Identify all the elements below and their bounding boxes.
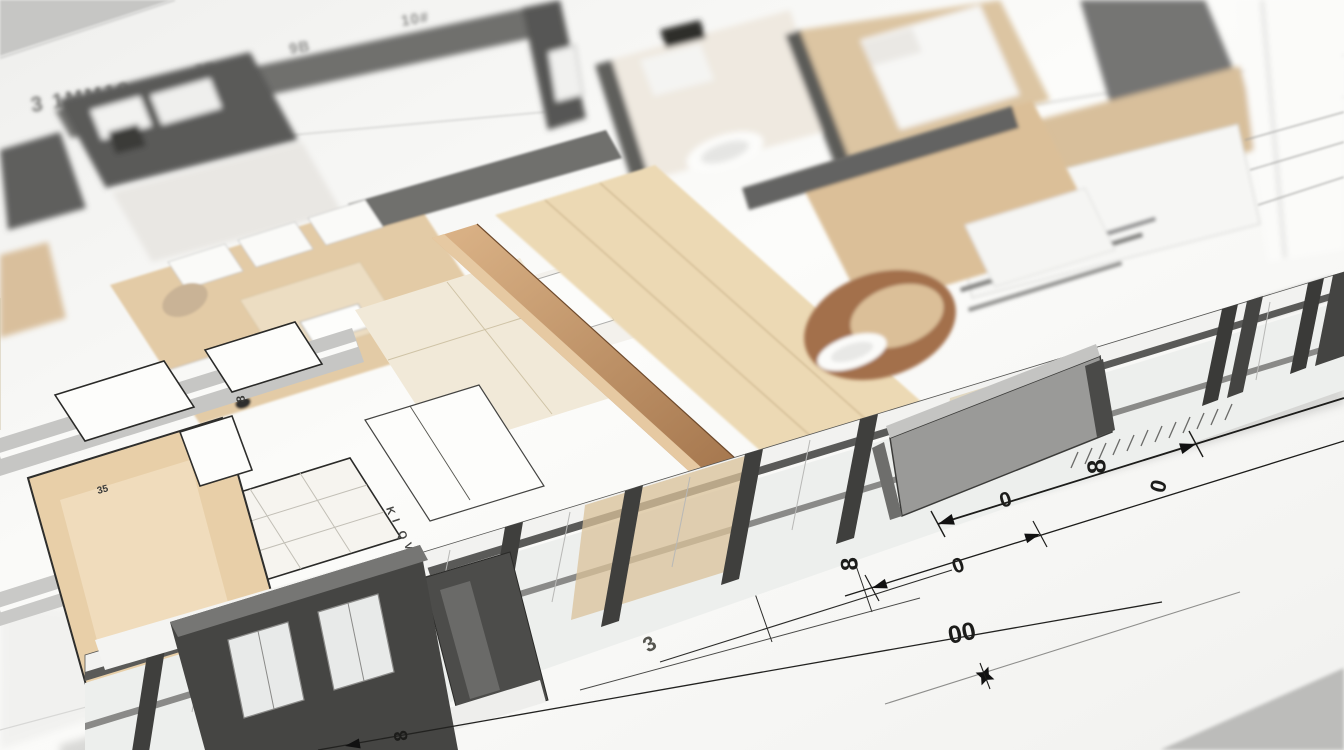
scene-svg: 3 1MM10 7B 9B 10# bbox=[0, 0, 1344, 750]
architectural-render-scene: 3 1MM10 7B 9B 10# bbox=[0, 0, 1344, 750]
stamp-text-3: 9B bbox=[288, 38, 312, 58]
dimension-label: 8 bbox=[836, 556, 864, 572]
dimension-label: 00 bbox=[945, 617, 978, 650]
dimension-label: 8 bbox=[1081, 458, 1112, 475]
